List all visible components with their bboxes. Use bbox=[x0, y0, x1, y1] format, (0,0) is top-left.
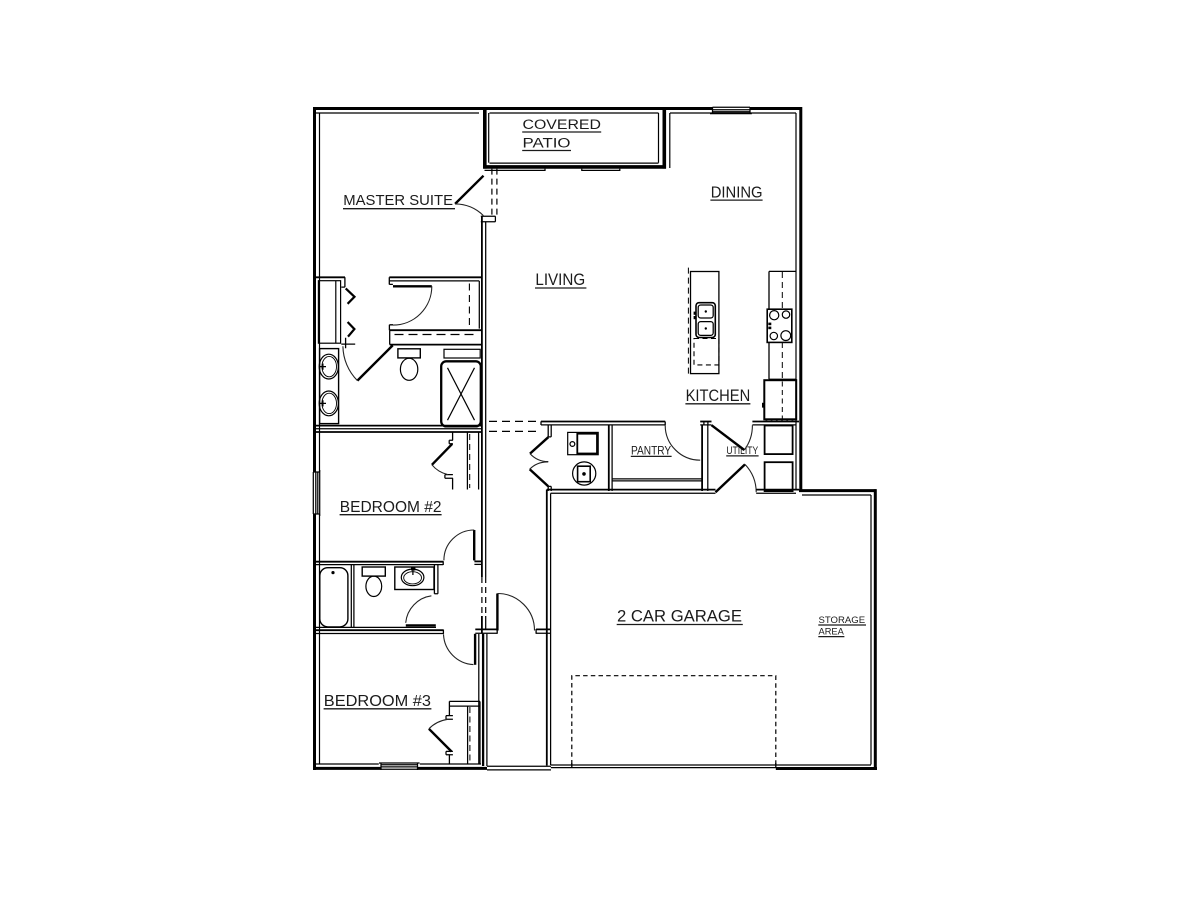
svg-text:MASTER SUITE: MASTER SUITE bbox=[343, 192, 453, 209]
svg-text:KITCHEN: KITCHEN bbox=[686, 386, 751, 405]
svg-text:BEDROOM #3: BEDROOM #3 bbox=[324, 693, 431, 710]
svg-text:AREA: AREA bbox=[819, 627, 844, 637]
svg-text:COVERED: COVERED bbox=[523, 117, 602, 132]
svg-text:STORAGE: STORAGE bbox=[819, 615, 866, 625]
svg-text:DINING: DINING bbox=[711, 185, 763, 202]
svg-text:BEDROOM #2: BEDROOM #2 bbox=[340, 499, 442, 516]
svg-text:LIVING: LIVING bbox=[535, 270, 585, 289]
svg-text:2 CAR GARAGE: 2 CAR GARAGE bbox=[617, 606, 742, 625]
svg-text:PANTRY: PANTRY bbox=[631, 445, 671, 458]
svg-text:PATIO: PATIO bbox=[523, 136, 571, 152]
